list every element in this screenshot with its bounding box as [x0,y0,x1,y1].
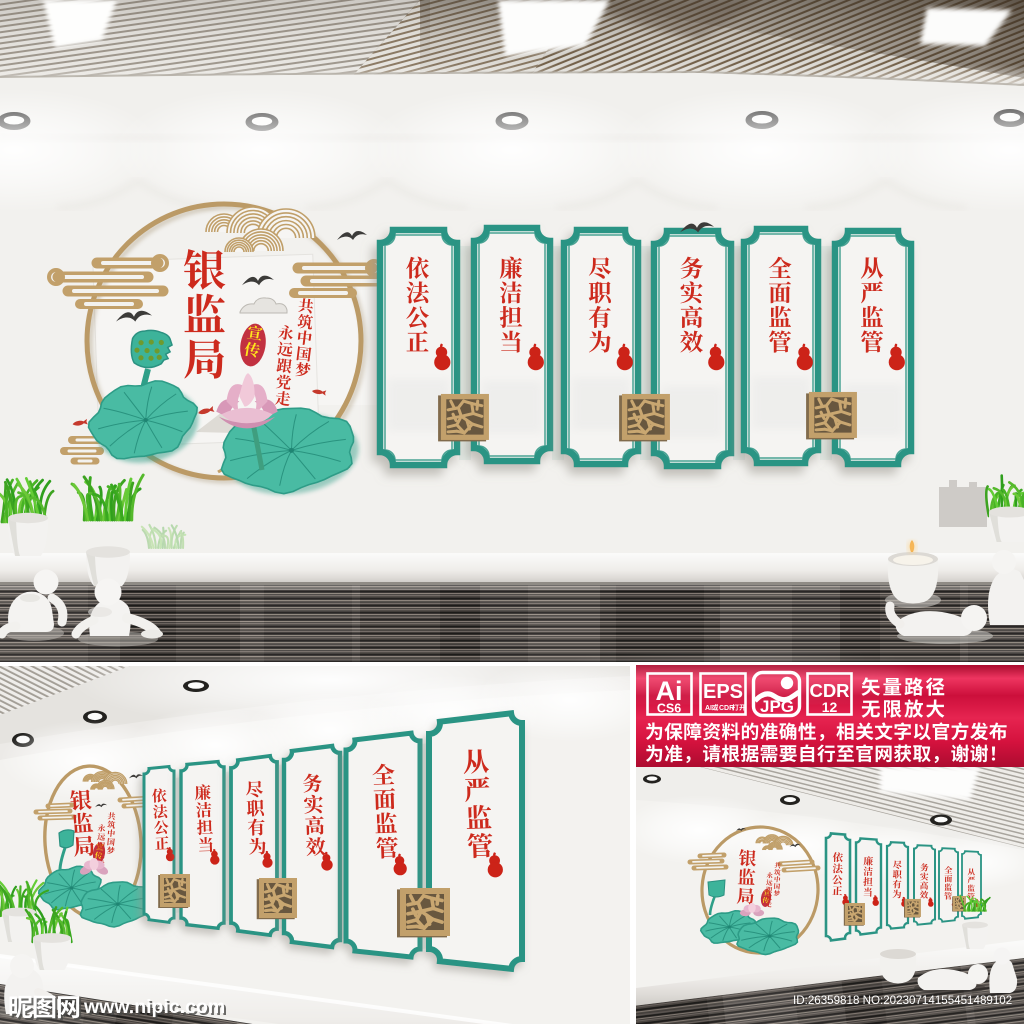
svg-text:ID:26359818 NO:202307141554514: ID:26359818 NO:20230714155451489102 [793,994,1012,1007]
svg-text:EPS: EPS [703,681,743,703]
svg-text:AI: AI [705,705,712,712]
svg-text:JPG: JPG [760,697,794,716]
svg-text:CDR: CDR [809,680,849,701]
svg-text:12: 12 [822,699,838,715]
svg-text:CDR: CDR [719,705,734,712]
svg-text:CS6: CS6 [657,702,681,716]
svg-text:www.nipic.com: www.nipic.com [83,996,225,1018]
